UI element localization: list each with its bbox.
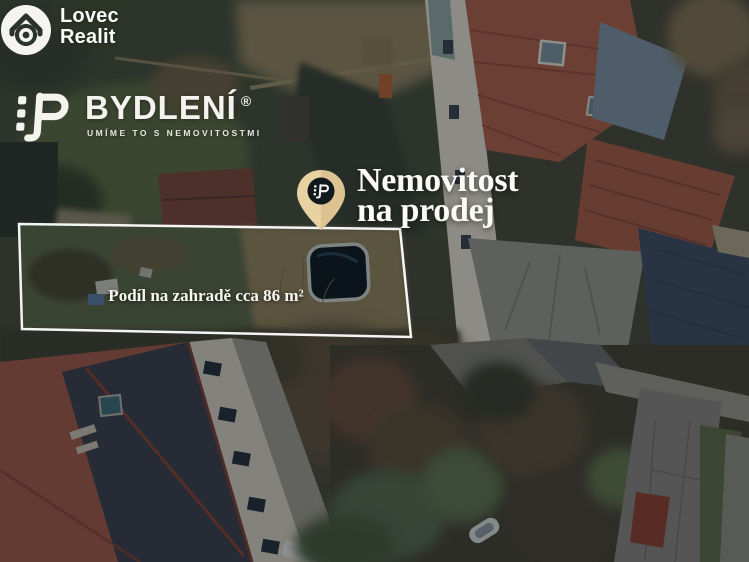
bydleni-block-icon — [16, 87, 74, 143]
location-pin-icon — [296, 169, 346, 231]
company-tagline: UMÍME TO S NEMOVITOSTMI — [87, 128, 262, 138]
agency-name-line2: Realit — [60, 27, 119, 48]
agency-name: Lovec Realit — [60, 3, 119, 48]
bydleni-logo: BYDLENÍ ® UMÍME TO S NEMOVITOSTMI — [16, 87, 262, 143]
house-scope-icon — [0, 3, 53, 56]
for-sale-badge: Nemovitost na prodej — [357, 166, 518, 226]
registered-trademark-symbol: ® — [241, 94, 251, 108]
lovec-realit-logo: Lovec Realit — [0, 3, 119, 56]
company-name: BYDLENÍ — [85, 93, 237, 123]
parcel-area-label: Podíl na zahradě cca 86 m² — [108, 286, 303, 306]
aerial-photo-background — [0, 0, 749, 562]
photo-dark-overlay — [0, 0, 749, 562]
agency-name-line1: Lovec — [60, 6, 119, 27]
for-sale-line2: na prodej — [357, 196, 518, 226]
listing-image: Podíl na zahradě cca 86 m² Lovec Realit … — [0, 0, 749, 562]
